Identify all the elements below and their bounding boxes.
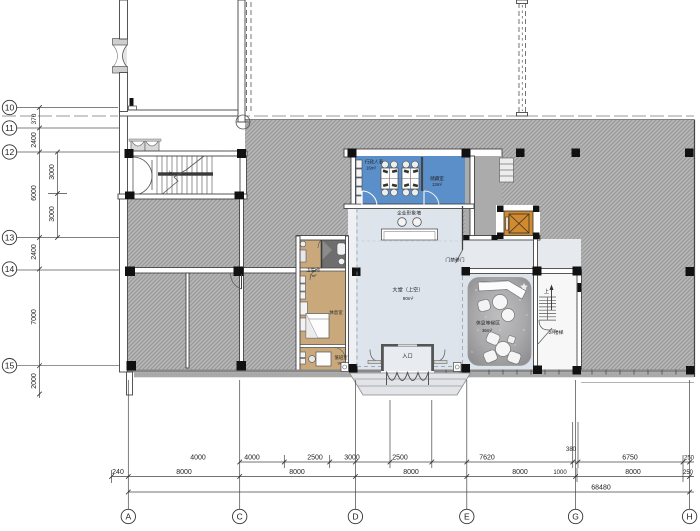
svg-text:企业形象墙: 企业形象墙: [397, 210, 421, 217]
svg-text:8000: 8000: [289, 469, 305, 476]
svg-text:15: 15: [5, 361, 15, 371]
svg-text:12: 12: [5, 147, 15, 157]
svg-text:6750: 6750: [622, 455, 638, 462]
svg-text:8000: 8000: [176, 469, 192, 476]
svg-text:8000: 8000: [625, 469, 641, 476]
svg-text:2000: 2000: [31, 373, 38, 389]
svg-text:3000: 3000: [344, 455, 360, 462]
svg-text:13m²: 13m²: [432, 182, 443, 187]
svg-text:7m²: 7m²: [310, 273, 318, 278]
svg-text:370: 370: [31, 113, 38, 124]
svg-text:休息室: 休息室: [329, 309, 343, 316]
svg-text:3000: 3000: [49, 164, 56, 180]
svg-text:13: 13: [5, 233, 15, 243]
svg-text:240: 240: [112, 469, 124, 476]
svg-text:14: 14: [5, 264, 15, 274]
svg-text:11: 11: [5, 123, 14, 133]
svg-text:储藏室: 储藏室: [430, 175, 444, 182]
svg-text:68480: 68480: [591, 485, 611, 492]
svg-text:休息等候区: 休息等候区: [476, 320, 500, 327]
svg-text:8000: 8000: [512, 469, 528, 476]
svg-text:C: C: [237, 512, 243, 522]
svg-text:E: E: [464, 512, 470, 522]
svg-text:380: 380: [566, 447, 577, 453]
svg-text:6000: 6000: [31, 185, 38, 201]
svg-text:16m²: 16m²: [366, 166, 377, 171]
svg-text:7000: 7000: [31, 309, 38, 325]
svg-text:90m²: 90m²: [403, 296, 414, 301]
svg-text:250: 250: [683, 470, 694, 476]
svg-text:2400: 2400: [31, 244, 38, 260]
svg-text:A: A: [125, 512, 131, 522]
svg-text:H: H: [687, 512, 693, 522]
svg-text:2400: 2400: [31, 132, 38, 148]
svg-text:大堂（上空）: 大堂（上空）: [392, 286, 423, 294]
svg-text:1000: 1000: [553, 470, 567, 476]
svg-text:36m²: 36m²: [482, 328, 493, 333]
svg-text:2500: 2500: [392, 455, 408, 462]
svg-text:7620: 7620: [479, 455, 495, 462]
svg-text:上: 上: [167, 170, 172, 177]
svg-text:2#楼梯: 2#楼梯: [549, 329, 564, 336]
svg-text:4000: 4000: [244, 455, 260, 462]
svg-text:4000: 4000: [190, 455, 206, 462]
svg-text:D: D: [352, 512, 358, 522]
svg-text:8000: 8000: [403, 469, 419, 476]
svg-text:G: G: [572, 512, 579, 522]
svg-text:入口: 入口: [402, 353, 412, 360]
svg-text:10: 10: [5, 103, 15, 113]
svg-text:3000: 3000: [49, 206, 56, 222]
svg-text:2500: 2500: [307, 455, 323, 462]
svg-text:门禁移门: 门禁移门: [445, 257, 464, 264]
svg-text:行政人事: 行政人事: [365, 159, 384, 166]
svg-text:上: 上: [544, 288, 549, 295]
svg-text:250: 250: [684, 456, 695, 462]
